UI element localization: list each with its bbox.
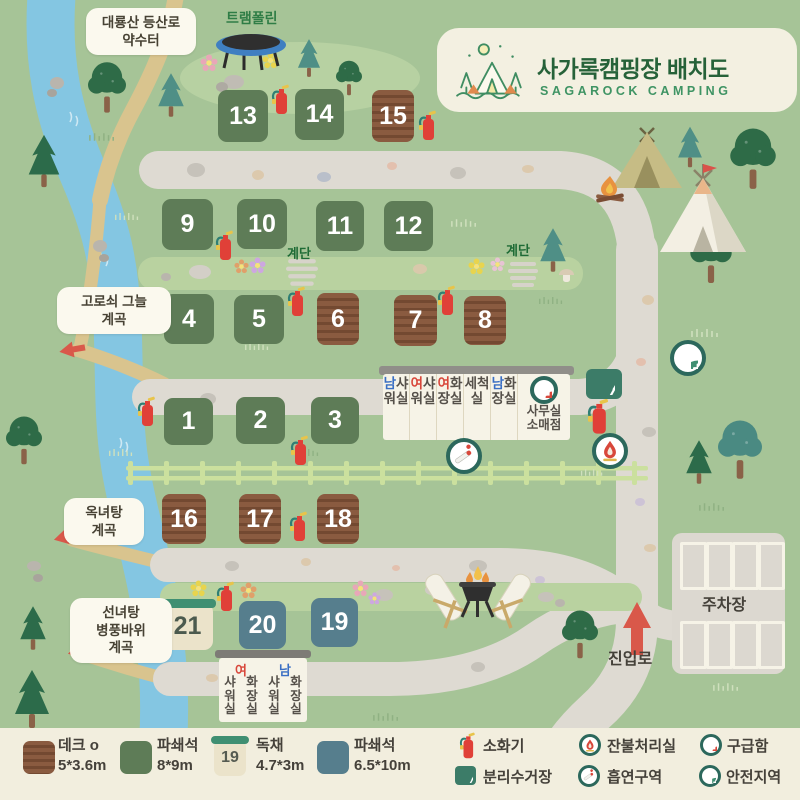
mens-shower-col: 샤워실 [264,675,285,717]
site-number: 21 [174,612,202,641]
campsite-19: 19 [311,598,358,647]
facility-col-dishwashing: 세척실 [464,374,491,440]
parking-bay [706,542,733,590]
site-number: 12 [395,212,423,241]
parking-bay [732,542,759,590]
site-number: 8 [478,306,492,335]
legend-label: 구급함 [727,738,768,756]
legend-label: 안전지역 [726,769,781,787]
logo-card: 사가록캠핑장 배치도 SAGAROCK CAMPING [437,28,797,112]
campsite-4: 4 [164,294,214,344]
smoking-area-icon [446,438,482,474]
site-number: 15 [379,102,407,131]
fence [126,461,648,485]
logo-art-tents-icon [453,40,529,104]
campsite-2: 2 [236,397,285,444]
legend-size: 4.7*3m [256,757,304,775]
site-number: 4 [182,305,196,334]
legend-size: 5*3.6m [58,757,106,775]
campsite-15: 15 [372,90,414,142]
parking-bay [706,621,733,669]
camping-map: 1 2 3 4 5 6 7 8 9 10 11 12 13 14 15 16 1… [0,0,800,800]
logo-subtitle: SAGAROCK CAMPING [540,84,731,98]
site-number: 20 [249,611,277,640]
parking-label: 주차장 [702,596,746,615]
site-number: 9 [181,210,195,239]
parking-bay [680,621,707,669]
campsite-12: 12 [384,201,433,251]
campsite-18: 18 [317,494,359,544]
campsite-17: 17 [239,494,281,544]
fire-extinguisher-icon [458,732,476,760]
legend-label: 데크 o [58,737,99,755]
ember-disposal-icon [579,734,601,756]
smoking-area-icon [578,765,600,787]
campsite-8: 8 [464,296,506,345]
parking-bay [758,542,785,590]
legend-swatch-cottage: 19 [214,740,246,776]
site-number: 5 [252,305,266,334]
facility-col-womens-toilet: 여화장실 [437,374,464,440]
site-number: 14 [306,100,334,129]
legend-swatch-gravel-blue [317,741,349,774]
site-number: 18 [324,505,352,534]
main-facility-building: 남샤워실 여샤워실 여화장실 세척실 남화장실 사무실 소매점 [383,366,570,440]
safety-zone-icon [699,765,721,787]
legend-label: 소화기 [483,738,524,756]
facility-col-mens-shower: 남샤워실 [383,374,410,440]
tent-khaki [612,128,682,188]
legend-bar: 데크 o 5*3.6m 파쇄석 8*9m 19 독채 4.7*3m 파쇄석 6.… [0,728,800,800]
stairs-label-1: 계단 [287,243,311,262]
campsite-5: 5 [234,295,284,344]
facility-col-womens-shower: 여샤워실 [410,374,437,440]
legend-label: 잔불처리실 [607,738,676,756]
safety-zone-icon [670,340,706,376]
parking-lot: 주차장 [672,533,785,674]
womens-shower-col: 샤워실 [220,675,241,717]
lower-facility-building: 여 남 샤워실 화장실 샤워실 화장실 [219,650,307,722]
site-number: 2 [254,406,268,435]
legend-swatch-gravel-green [120,741,152,774]
office-store: 사무실 소매점 [518,374,570,440]
legend-label: 분리수거장 [483,769,552,787]
first-aid-icon [700,734,722,756]
campsite-16: 16 [162,494,206,544]
stairs-label-2: 계단 [506,240,530,259]
site-number: 17 [246,505,274,534]
parking-bay [758,621,785,669]
womens-toilet-col: 화장실 [242,675,263,717]
campsite-6: 6 [317,293,359,345]
entrance-label: 진입로 [608,650,652,669]
site-number: 10 [248,210,276,239]
trampoline-label: 트램폴린 [226,10,278,27]
mens-toilet-col: 화장실 [286,675,307,717]
parking-bay [680,542,707,590]
campsite-7: 7 [394,295,437,346]
campsite-3: 3 [311,397,359,444]
campsite-10: 10 [237,199,287,249]
site-number: 1 [182,407,196,436]
legend-label: 독채 [256,737,284,755]
campsite-11: 11 [316,201,364,251]
campsite-13: 13 [218,90,268,142]
womens-section-label: 여 [219,660,263,675]
site-number: 19 [321,608,349,637]
legend-label: 흡연구역 [607,769,662,787]
campsite-1: 1 [164,398,213,445]
mens-section-label: 남 [263,660,307,675]
campsite-20: 20 [239,601,286,649]
site-number: 13 [229,102,257,131]
legend-label: 파쇄석 [354,737,395,755]
valley-label-gorosoe: 고로쇠 그늘계곡 [57,287,171,334]
recycle-icon [586,369,622,399]
site-number: 7 [409,306,423,335]
campsite-9: 9 [162,199,213,250]
ember-disposal-icon [592,433,628,469]
first-aid-icon [530,376,558,404]
legend-swatch-deck [23,741,55,774]
legend-size: 6.5*10m [354,757,411,775]
site-number: 3 [328,406,342,435]
legend-label: 파쇄석 [157,737,198,755]
trailhead-label: 대룡산 등산로약수터 [86,8,196,55]
valley-label-oknyeotang: 옥녀탕계곡 [64,498,144,545]
site-number: 11 [327,212,353,241]
site-number: 16 [170,505,198,534]
building-roof [215,650,311,658]
valley-label-seonnyeotang: 선녀탕병풍바위계곡 [70,598,172,663]
legend-size: 8*9m [157,757,193,775]
facility-col-mens-toilet: 남화장실 [491,374,518,440]
parking-bay [732,621,759,669]
site-number: 6 [331,305,345,334]
campsite-14: 14 [295,89,344,140]
recycle-icon [455,766,476,785]
logo-title: 사가록캠핑장 배치도 [537,50,729,84]
